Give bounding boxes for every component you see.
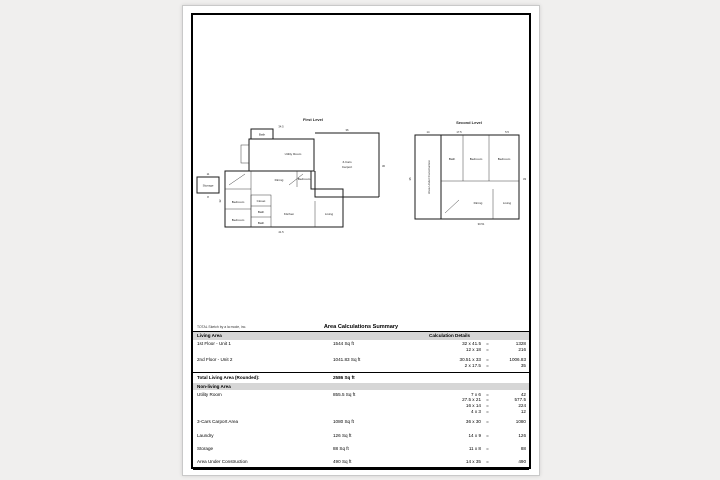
row-calculations: 14 x 35=490 bbox=[412, 459, 526, 465]
equals-sign: = bbox=[481, 347, 494, 353]
bath-label: Bath bbox=[258, 210, 265, 214]
dim-second-topright: 5.5 bbox=[505, 130, 509, 134]
equals-sign: = bbox=[481, 433, 494, 439]
calc-expression: 36 x 30 bbox=[412, 419, 481, 425]
non-living-area-header: Non-living Area bbox=[197, 384, 231, 389]
row-calculations: 11 x 8=88 bbox=[412, 446, 526, 452]
table-row-carport: 3-Cars Carport Area 1080 Sq ft 36 x 30=1… bbox=[193, 417, 529, 431]
calc-expression: 14 x 35 bbox=[412, 459, 481, 465]
bedroom-label: Bedroom bbox=[298, 177, 311, 181]
table-row-area-under-construction: Area Under Construction 490 Sq ft 14 x 3… bbox=[193, 457, 529, 468]
dim-storage-bottom: 8 bbox=[207, 195, 209, 199]
dim-second-topmid: 17.5 bbox=[456, 130, 462, 134]
bath-label: Bath bbox=[258, 221, 265, 225]
bedroom-label: Bedroom bbox=[470, 157, 483, 161]
total-value: 2586 Sq ft bbox=[333, 375, 355, 380]
second-level-title: Second Level bbox=[456, 120, 482, 125]
equals-sign: = bbox=[481, 419, 494, 425]
desktop-background: { "page": { "footer_note": "TOTAL Sketch… bbox=[0, 0, 720, 480]
calculation-details-column-header: Calculation Details bbox=[429, 333, 470, 338]
dim-first-left: 32 bbox=[218, 199, 222, 202]
row-label: 1st Floor - Unit 1 bbox=[197, 341, 231, 346]
row-calculations: 7 x 6=42 27.5 x 21=577.5 16 x 14=224 4 x… bbox=[412, 392, 526, 415]
first-level-title: First Level bbox=[303, 117, 323, 122]
calc-expression: 12 x 18 bbox=[412, 347, 481, 353]
under-construction-label: Area Under Construction bbox=[427, 160, 431, 194]
row-area-value: 1041.83 Sq ft bbox=[333, 357, 360, 362]
row-calculations: 36 x 30=1080 bbox=[412, 419, 526, 425]
equals-sign: = bbox=[481, 459, 494, 465]
bedroom-label: Bedroom bbox=[498, 157, 511, 161]
calc-result: 88 bbox=[494, 446, 526, 452]
row-label: 3-Cars Carport Area bbox=[197, 419, 238, 424]
utility-room-label: Utility Room bbox=[285, 152, 302, 156]
storage-room-label: Storage bbox=[203, 184, 214, 188]
calc-expression: 4 x 3 bbox=[412, 409, 481, 415]
row-area-value: 490 Sq ft bbox=[333, 459, 351, 464]
total-living-area-row: Total Living Area (Rounded): 2586 Sq ft bbox=[193, 372, 529, 383]
row-label: Utility Room bbox=[197, 392, 222, 397]
row-area-value: 1544 Sq ft bbox=[333, 341, 354, 346]
dim-second-topleft: 14 bbox=[427, 130, 430, 134]
kitchen-label: Kitchen bbox=[284, 212, 295, 216]
table-row-laundry: Laundry 126 Sq ft 14 x 9=126 bbox=[193, 431, 529, 444]
equals-sign: = bbox=[481, 446, 494, 452]
bedroom-label: Bedroom bbox=[232, 218, 245, 222]
dining-label: Dining bbox=[474, 201, 483, 205]
equals-sign: = bbox=[481, 363, 494, 369]
row-area-value: 855.5 Sq ft bbox=[333, 392, 355, 397]
table-row-storage: Storage 88 Sq ft 11 x 8=88 bbox=[193, 444, 529, 457]
table-row-1st-floor: 1st Floor - Unit 1 1544 Sq ft 32 x 41.5=… bbox=[193, 340, 529, 356]
equals-sign: = bbox=[481, 409, 494, 415]
dining-label: Dining bbox=[275, 178, 284, 182]
bath-label: Bath bbox=[449, 157, 456, 161]
row-label: Laundry bbox=[197, 433, 214, 438]
dim-second-bottom: 30.51 bbox=[478, 222, 485, 226]
bedroom-label: Bedroom bbox=[232, 200, 245, 204]
living-label: Living bbox=[503, 201, 511, 205]
dim-second-right: 33 bbox=[523, 177, 526, 181]
dim-storage-top: 11 bbox=[207, 172, 210, 176]
non-living-area-header-band: Non-living Area bbox=[193, 383, 529, 391]
first-closet-outline bbox=[241, 145, 249, 163]
row-calculations: 32 x 41.5=1328 12 x 18=216 bbox=[412, 341, 526, 352]
closet-label: Closet bbox=[257, 199, 266, 203]
floorplan-sketch: First Level 34.5 36 30 41.5 32 11 8 Stor… bbox=[193, 111, 529, 243]
calc-result: 490 bbox=[494, 459, 526, 465]
row-calculations: 14 x 9=126 bbox=[412, 433, 526, 439]
stairs-icon bbox=[229, 174, 245, 185]
living-label: Living bbox=[325, 212, 333, 216]
calc-result: 216 bbox=[494, 347, 526, 353]
row-label: Area Under Construction bbox=[197, 459, 248, 464]
carport-label-2: Carport bbox=[342, 165, 352, 169]
summary-title: Area Calculations Summary bbox=[193, 324, 529, 330]
living-area-header-band: Living Area Calculation Details bbox=[193, 332, 529, 340]
calc-result: 1080 bbox=[494, 419, 526, 425]
dim-second-left: 35 bbox=[408, 177, 412, 180]
calc-result: 12 bbox=[494, 409, 526, 415]
total-label: Total Living Area (Rounded): bbox=[197, 375, 260, 380]
calc-result: 35 bbox=[494, 363, 526, 369]
row-calculations: 30.51 x 33=1006.83 2 x 17.5=35 bbox=[412, 357, 526, 368]
row-label: Storage bbox=[197, 446, 213, 451]
dim-carport-top: 36 bbox=[346, 128, 349, 132]
calc-expression: 2 x 17.5 bbox=[412, 363, 481, 369]
calc-expression: 11 x 8 bbox=[412, 446, 481, 452]
carport-label-1: 3-Cars bbox=[342, 160, 352, 164]
table-row-utility-room: Utility Room 855.5 Sq ft 7 x 6=42 27.5 x… bbox=[193, 390, 529, 417]
dim-first-bottom: 41.5 bbox=[278, 230, 284, 234]
sketch-border-frame: First Level 34.5 36 30 41.5 32 11 8 Stor… bbox=[191, 13, 531, 469]
document-page: First Level 34.5 36 30 41.5 32 11 8 Stor… bbox=[182, 5, 540, 476]
summary-header: TOTAL Sketch by a la mode, inc. Area Cal… bbox=[193, 321, 529, 332]
bath-top-label: Bath bbox=[259, 133, 266, 137]
dim-first-top: 34.5 bbox=[278, 125, 284, 129]
table-row-2nd-floor: 2nd Floor - Unit 2 1041.83 Sq ft 30.51 x… bbox=[193, 356, 529, 372]
dim-carport-right: 30 bbox=[382, 164, 385, 168]
calc-expression: 14 x 9 bbox=[412, 433, 481, 439]
row-area-value: 88 Sq ft bbox=[333, 446, 349, 451]
row-area-value: 126 Sq ft bbox=[333, 433, 351, 438]
calc-result: 126 bbox=[494, 433, 526, 439]
area-calculations-summary: TOTAL Sketch by a la mode, inc. Area Cal… bbox=[193, 321, 529, 470]
row-area-value: 1080 Sq ft bbox=[333, 419, 354, 424]
stairs-icon bbox=[445, 200, 459, 213]
row-label: 2nd Floor - Unit 2 bbox=[197, 357, 233, 362]
living-area-column-header: Living Area bbox=[197, 333, 222, 338]
utility-room-outline bbox=[249, 139, 314, 171]
